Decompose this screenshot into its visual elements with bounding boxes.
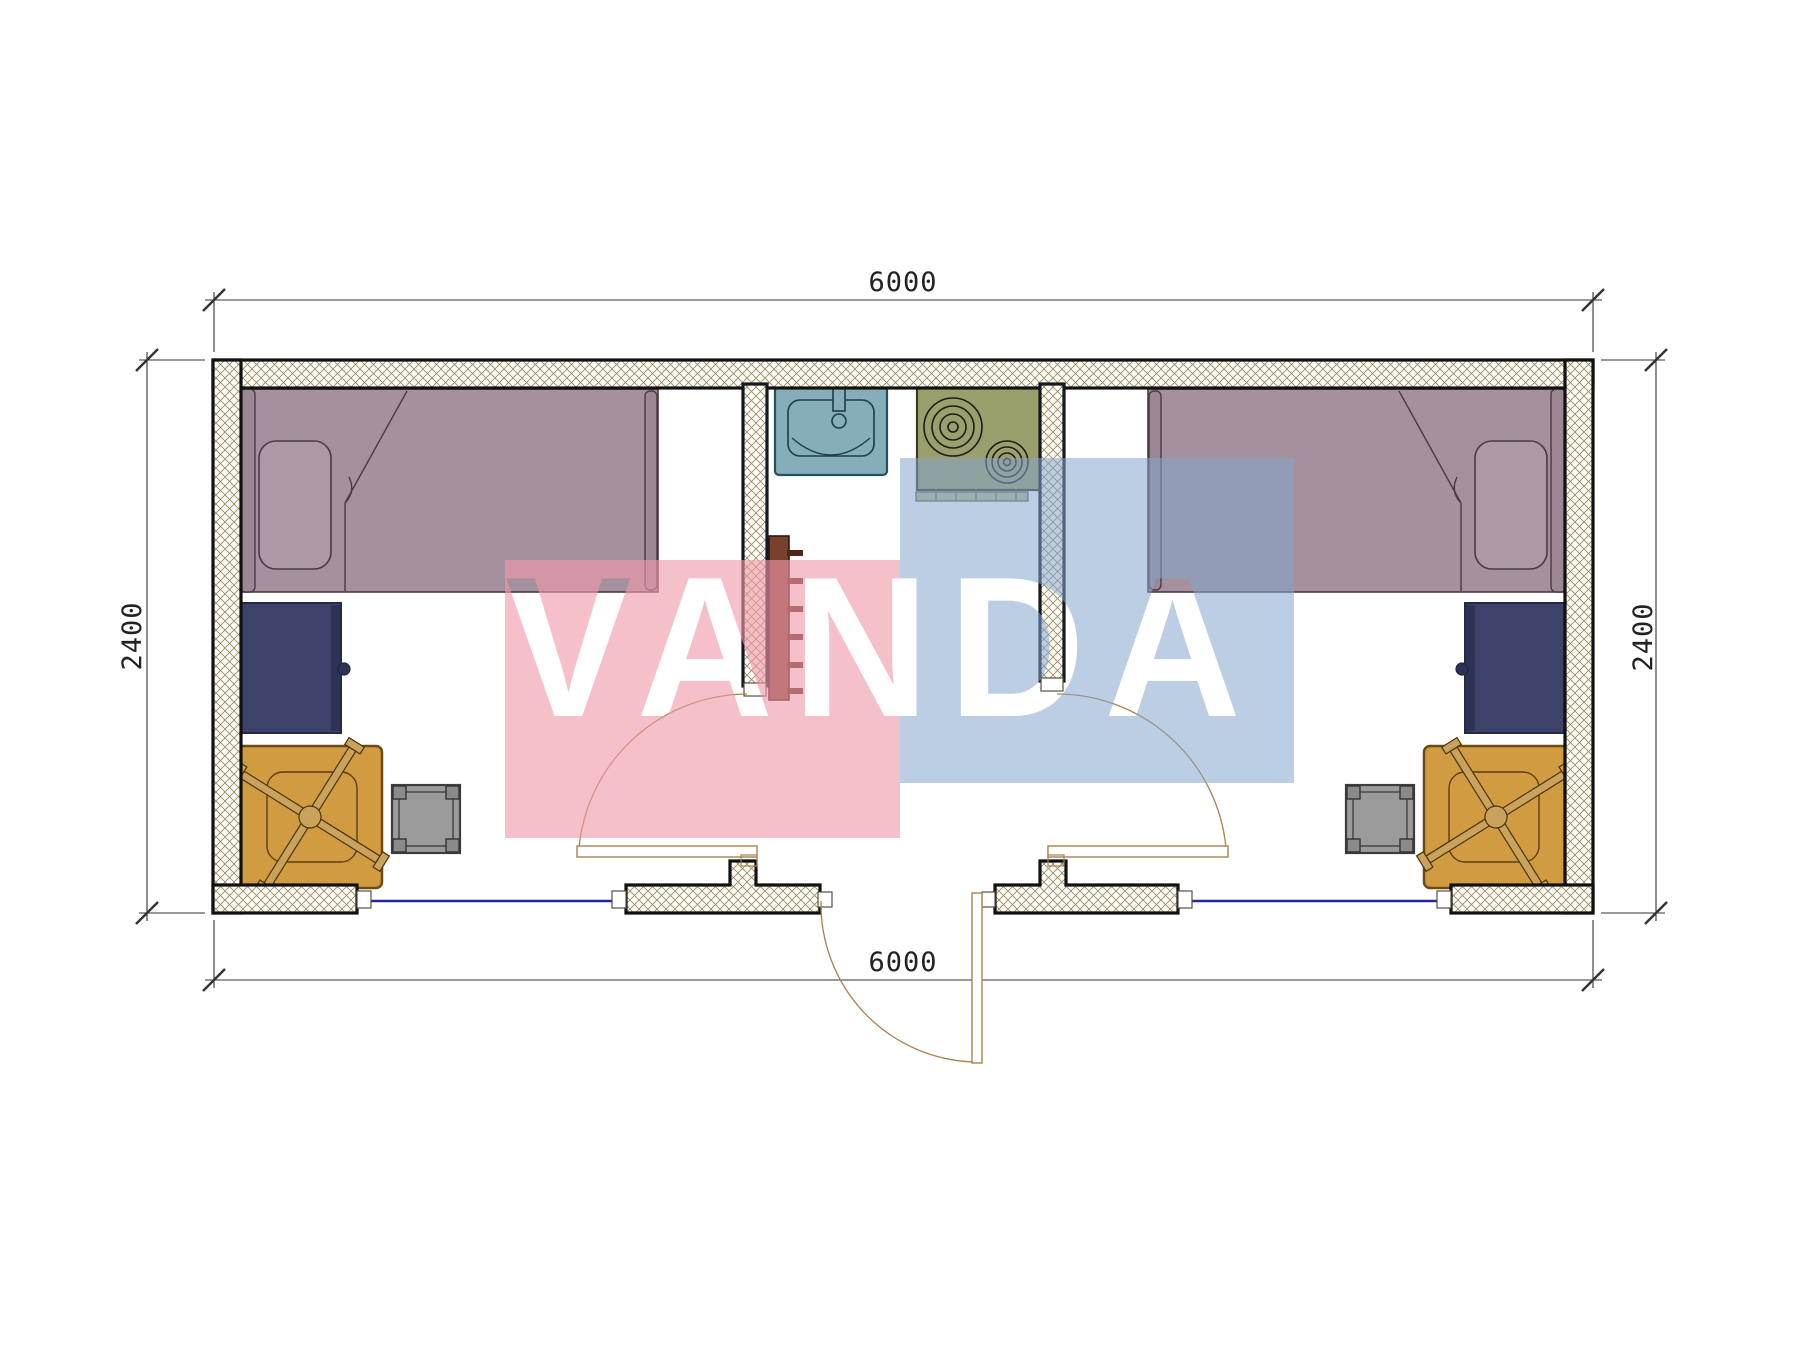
stool-right-post-ne [1400, 786, 1413, 799]
wall-bottom-left-tee [626, 861, 820, 913]
stool-left-post-se [446, 839, 459, 852]
door-right-leaf [1048, 846, 1228, 857]
faucet-spout [832, 414, 846, 428]
stool-right [1346, 785, 1414, 853]
wall-right [1565, 360, 1593, 913]
desk-navy-left-top [241, 603, 341, 733]
stool-left-post-nw [393, 786, 406, 799]
dim-label-right: 2400 [1628, 602, 1659, 671]
stool-left-post-sw [393, 839, 406, 852]
pillow-left [259, 441, 331, 569]
stool-right-post-se [1400, 839, 1413, 852]
dim-label-bottom: 6000 [868, 947, 937, 978]
entrance-jamb-left [818, 892, 832, 907]
sink-counter [775, 385, 887, 475]
entrance-swing-arc [821, 901, 974, 1062]
stool-left [392, 785, 460, 853]
watermark-blue-block [900, 458, 1294, 783]
desk-navy-right-knob [1456, 663, 1468, 675]
dim-left-lines [139, 352, 205, 921]
entrance-door-leaf [972, 893, 982, 1063]
door-left-leaf [577, 846, 757, 857]
pillow-right [1475, 441, 1547, 569]
wall-top [213, 360, 1593, 388]
desk-navy-right [1456, 603, 1565, 733]
dim-label-top: 6000 [868, 267, 937, 298]
entrance-jamb-right [982, 892, 995, 907]
window-left-frame-a [357, 891, 371, 908]
floor-plan-canvas: VANDA [0, 0, 1800, 1350]
watermark-pink-block [505, 560, 900, 838]
desk-navy-right-top [1465, 603, 1565, 733]
stool-right-post-sw [1347, 839, 1360, 852]
window-right-frame-a [1178, 891, 1192, 908]
stool-left-post-ne [446, 786, 459, 799]
wall-left [213, 360, 241, 913]
desk-navy-left-knob [338, 663, 350, 675]
wall-bottom-right-tee [995, 861, 1178, 913]
window-left-frame-b [612, 891, 626, 908]
window-right-frame-b [1437, 891, 1451, 908]
dim-label-left: 2400 [117, 601, 148, 670]
wall-bottom-left [213, 885, 357, 913]
floor-plan-page: VANDA [0, 0, 1800, 1350]
sink-unit [775, 385, 887, 475]
stool-right-post-nw [1347, 786, 1360, 799]
wall-bottom-right [1451, 885, 1593, 913]
desk-navy-left [241, 603, 350, 733]
dim-top-lines [205, 292, 1602, 352]
faucet-icon [833, 387, 845, 411]
